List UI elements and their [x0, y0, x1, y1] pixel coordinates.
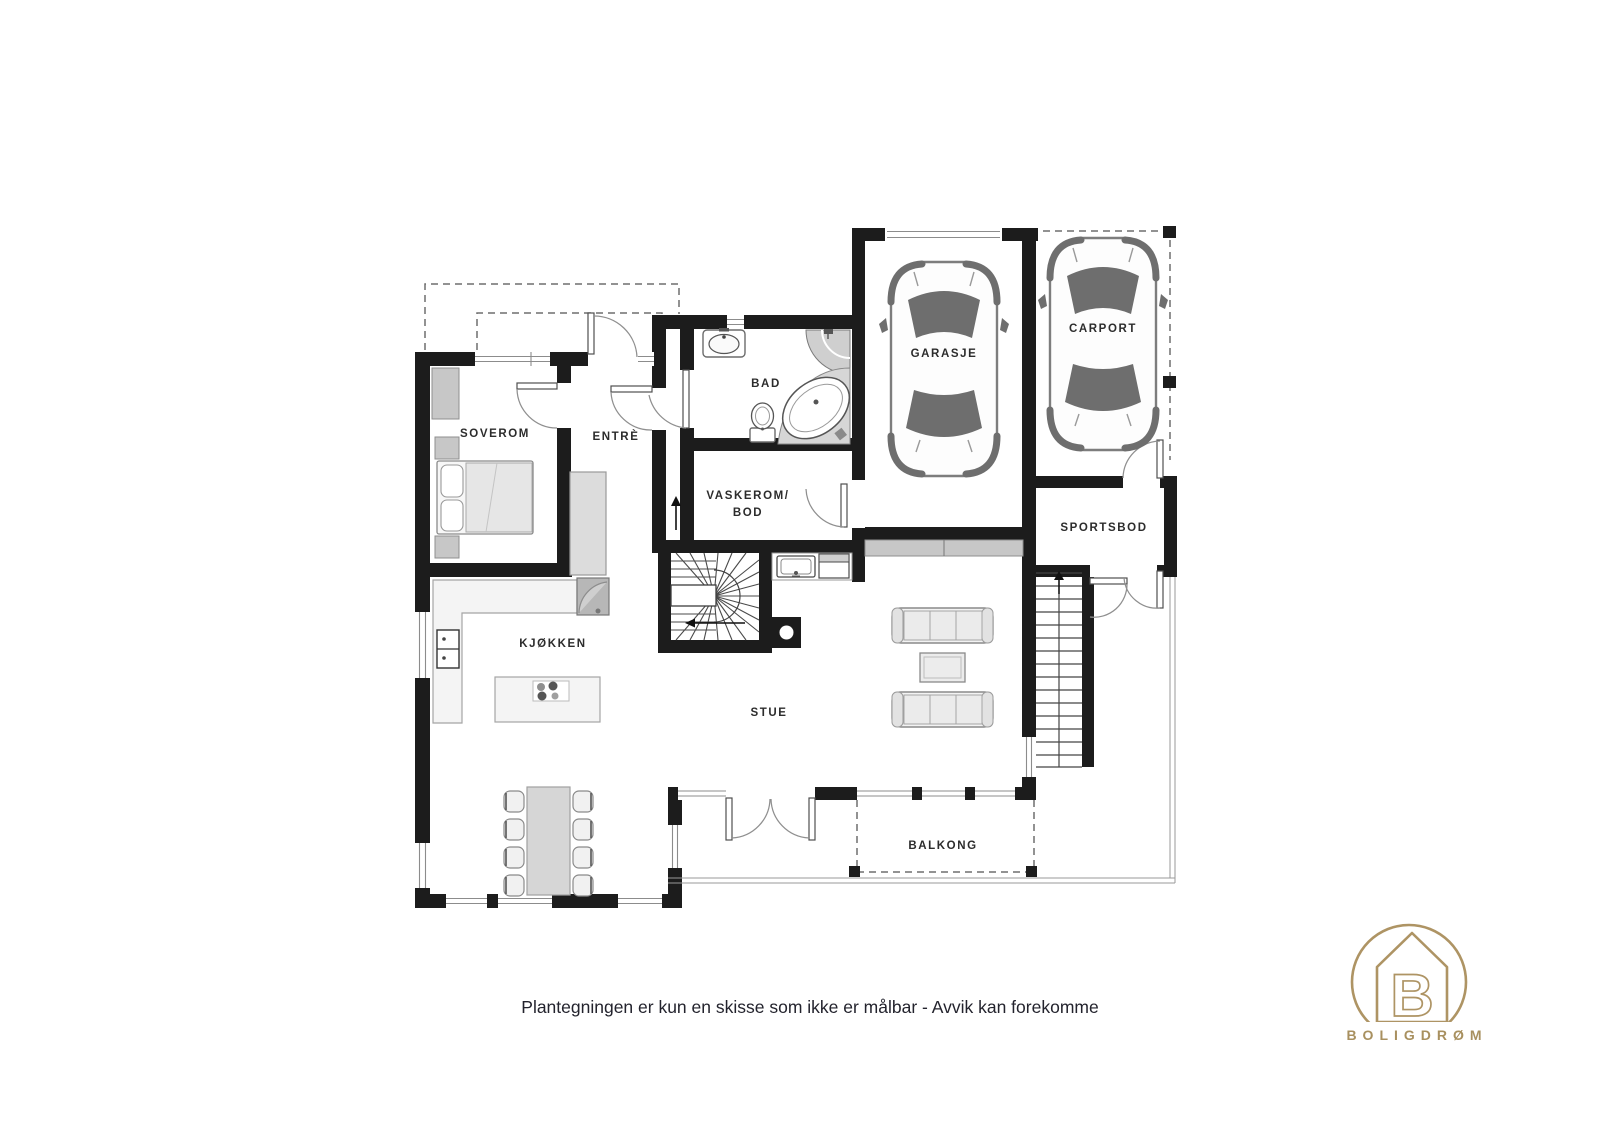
dining-set — [504, 787, 593, 896]
room-label-soverom: SOVEROM — [460, 428, 530, 440]
corner-bathtub-icon — [771, 365, 861, 452]
shower-icon — [806, 329, 850, 374]
kitchen-left-window-b — [415, 843, 430, 888]
bedroom-window — [475, 352, 550, 366]
sofa-top — [892, 608, 993, 643]
bathroom-window — [727, 315, 744, 329]
floorplan-page: SOVEROM ENTRÈ BAD VASKEROM/ BOD KJØKKEN … — [0, 0, 1600, 1131]
fridge-icon — [577, 578, 609, 615]
bathroom-fixtures — [703, 328, 861, 451]
double-bed-icon — [437, 461, 533, 534]
kitchen-island — [495, 677, 600, 722]
laundry-door — [806, 480, 865, 528]
toilet-icon — [750, 403, 775, 442]
room-label-bod: BOD — [733, 507, 763, 519]
room-label-entre: ENTRÈ — [593, 430, 640, 443]
room-label-bad: BAD — [751, 378, 781, 390]
balcony-double-door — [726, 787, 815, 840]
entrance-door — [588, 313, 638, 366]
entry-side-window — [638, 352, 654, 366]
room-label-balkong: BALKONG — [908, 840, 977, 852]
wardrobe — [432, 368, 459, 419]
balcony-dashed-boundary — [849, 800, 1037, 877]
sofa-bottom — [892, 692, 993, 727]
livingroom-right-window — [1022, 737, 1036, 777]
room-label-carport: CARPORT — [1069, 323, 1137, 335]
washing-machine-icon — [819, 554, 849, 578]
nightstand-top — [435, 437, 459, 459]
oven-icon — [437, 630, 459, 668]
room-label-sportsbod: SPORTSBOD — [1060, 522, 1147, 534]
entry-direction-arrow — [671, 496, 681, 530]
nightstand-bottom — [435, 536, 459, 558]
garage-car-icon — [879, 262, 1009, 476]
dining-table — [527, 787, 570, 895]
outdoor-staircase — [1036, 571, 1082, 767]
hallway-door — [611, 386, 666, 430]
room-label-garasje: GARASJE — [911, 348, 978, 360]
kitchen-left-window-a — [415, 612, 430, 678]
room-label-vaskerom: VASKEROM/ — [706, 490, 789, 502]
livingroom-furniture — [892, 608, 993, 727]
laundry-sink-icon — [777, 556, 815, 577]
disclaimer-text: Plantegningen er kun en skisse som ikke … — [521, 997, 1098, 1017]
garage-door-opening — [885, 226, 1002, 243]
room-label-stue: STUE — [750, 707, 787, 719]
garage-apron — [865, 540, 1023, 556]
laundry-counter — [772, 553, 852, 580]
logo-monogram: B — [1390, 962, 1433, 1029]
boligdrom-logo: B BOLIGDRØM — [1333, 925, 1495, 1045]
bedroom-door — [517, 383, 571, 428]
sink-icon — [703, 328, 745, 357]
roof-overhang-dashes — [425, 284, 679, 350]
storage-lower-doors — [1090, 565, 1163, 617]
dining-side-window — [668, 825, 682, 868]
indoor-staircase — [671, 553, 759, 640]
chimney — [772, 617, 801, 648]
carport-car-icon — [1038, 238, 1168, 450]
hall-closet — [570, 472, 606, 575]
floorplan-drawing: SOVEROM ENTRÈ BAD VASKEROM/ BOD KJØKKEN … — [0, 0, 1600, 1131]
logo-brand-text: BOLIGDRØM — [1346, 1027, 1487, 1043]
room-label-kjokken: KJØKKEN — [519, 638, 586, 650]
